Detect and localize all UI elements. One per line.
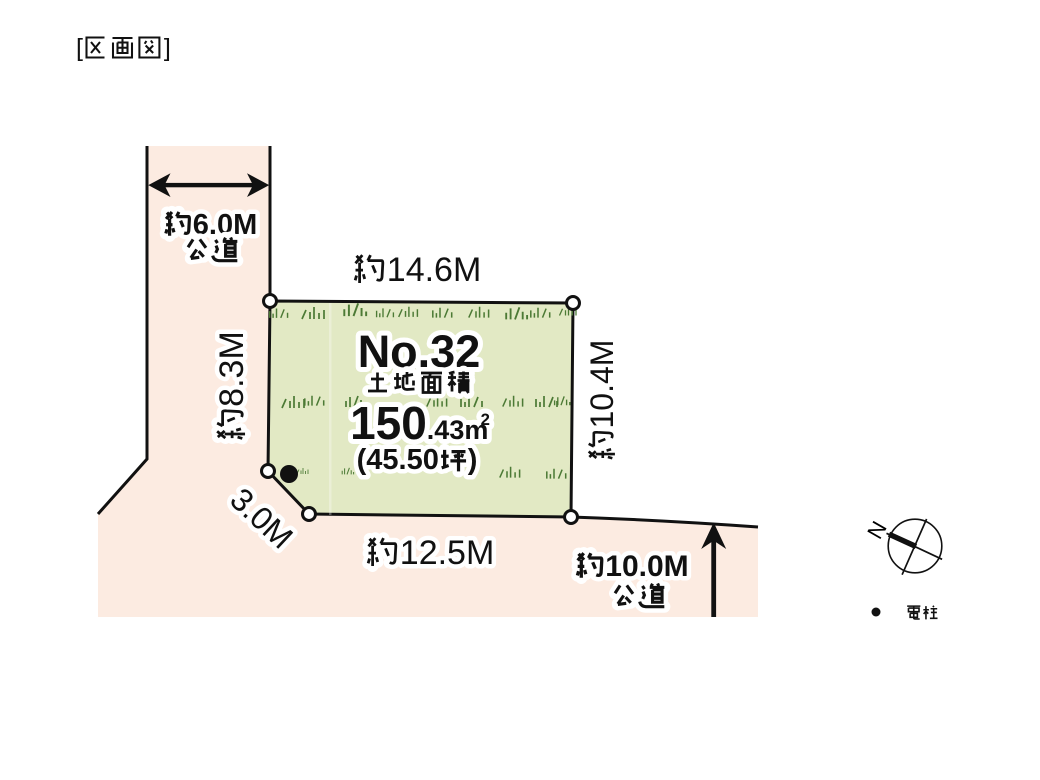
- svg-text:(45.50: (45.50: [357, 444, 439, 476]
- svg-text:150: 150: [350, 397, 427, 449]
- svg-text:8.3M: 8.3M: [213, 331, 251, 407]
- svg-text:]: ]: [164, 34, 171, 62]
- svg-text:): ): [468, 444, 478, 476]
- svg-text:10.4M: 10.4M: [584, 340, 620, 429]
- svg-text:2: 2: [481, 410, 490, 429]
- svg-text:12.5M: 12.5M: [400, 534, 495, 572]
- svg-text:.43m: .43m: [427, 415, 489, 445]
- svg-text:14.6M: 14.6M: [387, 251, 482, 289]
- svg-text:[: [: [76, 34, 83, 62]
- svg-text:10.0M: 10.0M: [605, 550, 688, 583]
